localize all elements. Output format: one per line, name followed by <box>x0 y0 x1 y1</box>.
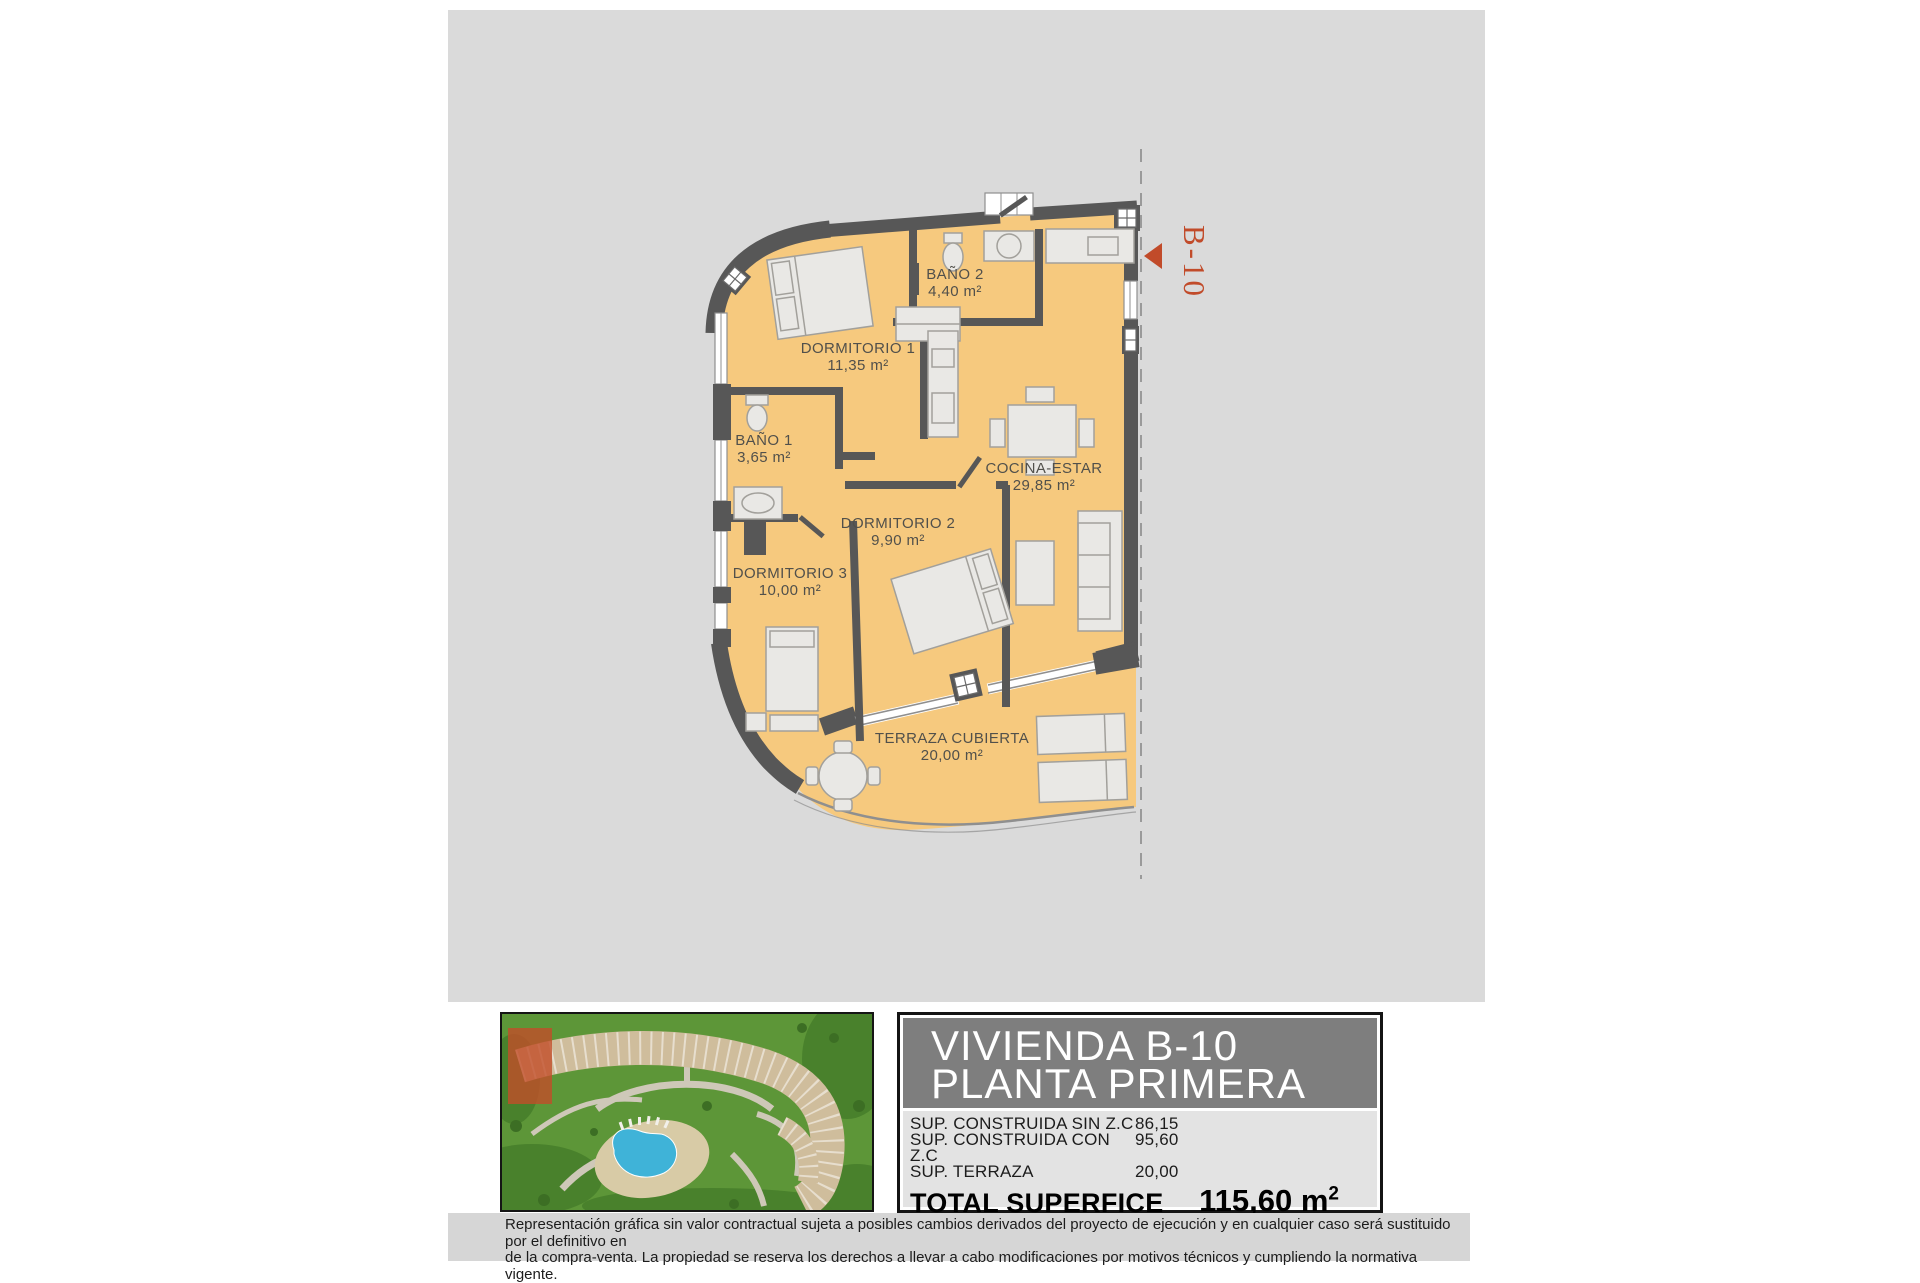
right-window <box>1124 281 1137 319</box>
disclaimer-line2: de la compra-venta. La propiedad se rese… <box>505 1250 1460 1283</box>
site-aerial-photo <box>500 1012 874 1212</box>
terrace-chair <box>806 767 818 785</box>
room-label-name: COCINA-ESTAR <box>985 460 1102 477</box>
disclaimer-line1: Representación gráfica sin valor contrac… <box>505 1217 1460 1250</box>
unit-title-line2: PLANTA PRIMERA <box>931 1065 1377 1103</box>
page: { "plan": { "unit_marker": { "label": "B… <box>0 0 1920 1280</box>
plan-canvas: B-10 DORMITORIO 111,35 m²BAÑO 24,40 m²BA… <box>448 10 1485 1002</box>
bed-double-1 <box>767 247 873 340</box>
stat-value: 95,60 <box>1135 1132 1179 1164</box>
dining-chair <box>990 419 1005 447</box>
room-label-area: 10,00 m² <box>759 582 821 599</box>
unit-marker: B-10 <box>1141 149 1212 879</box>
dining-chair <box>1079 419 1094 447</box>
room-label-area: 4,40 m² <box>928 283 982 300</box>
sofa <box>1078 511 1122 631</box>
stat-row: SUP. TERRAZA20,00 <box>910 1164 1369 1180</box>
room-label-area: 3,65 m² <box>737 449 791 466</box>
surface-stats: SUP. CONSTRUIDA SIN Z.C86,15SUP. CONSTRU… <box>910 1116 1369 1180</box>
toilet-2-tank <box>944 233 962 243</box>
room-label-name: BAÑO 2 <box>926 266 983 283</box>
duct-block <box>744 521 766 555</box>
disclaimer: Representación gráfica sin valor contrac… <box>448 1213 1470 1261</box>
room-label-name: DORMITORIO 3 <box>733 565 848 582</box>
room-label-name: BAÑO 1 <box>735 432 792 449</box>
sink-2 <box>997 234 1021 258</box>
toilet-1 <box>747 405 767 431</box>
aerial-render <box>502 1014 872 1210</box>
stat-row: SUP. CONSTRUIDA CON Z.C95,60 <box>910 1132 1369 1164</box>
terrace-chair <box>834 799 852 811</box>
kitchen-sink <box>1088 237 1118 255</box>
unit-location-highlight <box>508 1028 552 1104</box>
dining-chair <box>1026 387 1054 402</box>
room-label-area: 20,00 m² <box>921 747 983 764</box>
entry <box>985 193 1033 217</box>
info-panel: VIVIENDA B-10 PLANTA PRIMERA SUP. CONSTR… <box>897 1012 1383 1213</box>
room-label-area: 9,90 m² <box>871 532 925 549</box>
stat-label: SUP. TERRAZA <box>910 1164 1135 1180</box>
terrace-chair <box>834 741 852 753</box>
unit-arrow-icon <box>1144 243 1162 269</box>
sink-1 <box>742 493 774 513</box>
terrace-chair <box>868 767 880 785</box>
room-label-name: DORMITORIO 2 <box>841 515 956 532</box>
stat-label: SUP. CONSTRUIDA CON Z.C <box>910 1132 1135 1164</box>
panel-header: VIVIENDA B-10 PLANTA PRIMERA <box>903 1018 1377 1108</box>
toilet-1-tank <box>746 395 768 405</box>
room-label-area: 29,85 m² <box>1013 477 1075 494</box>
room-label-name: TERRAZA CUBIERTA <box>875 730 1029 747</box>
floor-plan: B-10 DORMITORIO 111,35 m²BAÑO 24,40 m²BA… <box>448 10 1485 1002</box>
unit-label: B-10 <box>1177 225 1212 299</box>
dining-table <box>1008 405 1076 457</box>
coffee-table <box>1016 541 1054 605</box>
room-label-name: DORMITORIO 1 <box>801 340 916 357</box>
terrace-table <box>819 752 867 800</box>
panel-body: SUP. CONSTRUIDA SIN Z.C86,15SUP. CONSTRU… <box>903 1111 1377 1207</box>
stat-value: 20,00 <box>1135 1164 1179 1180</box>
room-label-area: 11,35 m² <box>827 357 888 374</box>
